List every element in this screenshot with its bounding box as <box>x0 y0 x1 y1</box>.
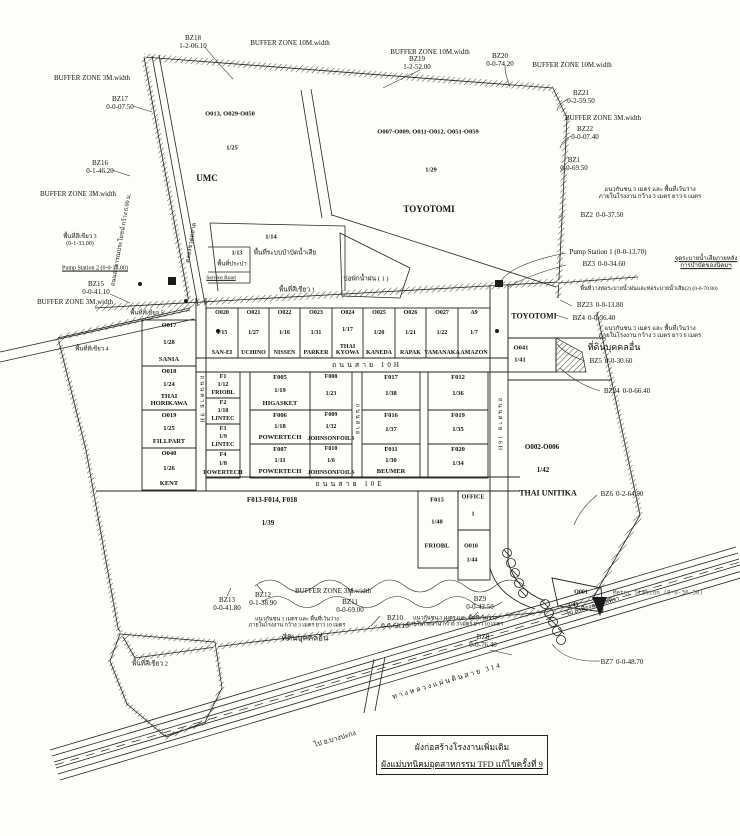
plot-cell-f012: F0121/36 <box>428 372 488 410</box>
buffer-3m-label-south: BUFFER ZONE 3M.width <box>295 587 371 595</box>
office-no: 1 <box>472 512 475 519</box>
f015-name: FRIOBL <box>425 542 450 549</box>
plot-cell-f007: F0071/11POWERTECH <box>250 444 310 478</box>
unitika-name: THAI UNITIKA <box>519 488 577 497</box>
plot-cell-f006: F0061/18POWERTECH <box>250 410 310 444</box>
pump-station-1-label: Pump Station 1 (0-0-13.70) <box>570 248 647 256</box>
setback-note-e: แนวกันชน 3 เมตร และ พื้นที่เว้นว่างภายใน… <box>599 326 701 340</box>
plot-cell-f010: F0101/6JOHNSONFOILS <box>310 444 352 478</box>
plot-cell-f009: F0091/32JOHNSONFOILS <box>310 410 352 444</box>
buffer-3m-label-west1: BUFFER ZONE 3M.width <box>40 190 116 198</box>
setback-note-ne: แนวกันชน 3 เมตร และ พื้นที่เว้นว่างภายใน… <box>599 187 701 201</box>
plot-cell-f3: F31/9LINTEC <box>206 424 240 450</box>
bz9-callout: BZ90-0-42.50 <box>466 595 493 611</box>
plot-cell-f017: F0171/38 <box>362 372 420 410</box>
plot-cell-f005: F0051/19HIGASKET <box>250 372 310 410</box>
waterworks-no: 1/13 <box>232 251 243 258</box>
bz5-callout: BZ50-0-30.60 <box>590 357 633 365</box>
plot-cell-o023: O0231/31PARKER <box>300 308 332 358</box>
plot-cell-f019: F0191/35 <box>428 410 488 444</box>
road-v2-label: ถนนสาย <box>354 404 360 437</box>
bz7-callout: BZ70-0-48.70 <box>601 658 644 666</box>
green-area-5-label: พื้นที่สีเขียว 5 <box>130 311 163 318</box>
bz17-callout: BZ170-0-07.50 <box>106 95 133 111</box>
others-land-label-south: ที่ดินบุคคลอื่น <box>282 633 329 642</box>
bz20-callout: BZ200-0-74.20 <box>486 52 513 68</box>
bz8-callout: BZ80-0-76.40 <box>469 633 496 649</box>
plot-cell-f1: F11/12FRIOBL <box>206 372 240 398</box>
bz11-callout: BZ110-0-69.00 <box>336 598 363 614</box>
green-area-4-label: พื้นที่สีเขียว 4 <box>75 347 108 354</box>
site-plan-sheet: BZ181-2-06.10 BUFFER ZONE 10M.width BUFF… <box>0 0 740 836</box>
buffer-3m-label-west2: BUFFER ZONE 3M.width <box>37 298 113 306</box>
buffer-3m-label-right: BUFFER ZONE 3M.width <box>565 114 641 122</box>
f013-codes: F013-F014, F018 <box>247 496 297 504</box>
road-v4-label: ถนนสาย 16H <box>496 398 503 452</box>
plot-cell-f016: F0161/37 <box>362 410 420 444</box>
road-h2-label: ถนนสาย 10E <box>315 480 384 488</box>
buffer-3m-label-topleft: BUFFER ZONE 3M.width <box>54 74 130 82</box>
title-block: ผังก่อสร้างโรงงานเพิ่มเติม ผังแม่บทนิคมอ… <box>376 735 548 775</box>
o041-code: O041 <box>514 344 529 351</box>
bz6-callout: BZ60-2-64.90 <box>601 490 644 498</box>
toyotomi-n-codes: O007-O009, O011-O012, O051-O059 <box>377 128 478 135</box>
plot-cell-f020: F0201/34 <box>428 444 488 478</box>
green-area-3-label: พื้นที่สีเขียว 3(0-1-33.00) <box>63 234 96 248</box>
unitika-codes: O002-O006 <box>525 443 559 451</box>
bz24-callout: BZ240-0-66.40 <box>604 387 650 395</box>
bz18-callout: BZ181-2-06.10 <box>179 34 206 50</box>
pipe-corridor-note: พื้นที่วางท่อระบายน้ำฝนและท่อระบายน้ำเสี… <box>580 286 717 292</box>
o001-code: O001 <box>574 590 588 597</box>
umc-plot-no: 1/25 <box>226 144 238 151</box>
plot-cell-f4: F41/8POWERTECH <box>206 450 240 478</box>
toyotomi-e-name: TOYOTOMI <box>511 311 557 320</box>
plot-cell-f008: F0081/23 <box>310 372 352 410</box>
bz19-callout: BZ191-2-52.00 <box>403 55 430 71</box>
bz12-callout: BZ120-1-38.90 <box>249 591 276 607</box>
plot-cell-f011: F0111/30BEUMER <box>362 444 420 478</box>
plot-cell-o027: O0271/22YAMANAKA <box>426 308 458 358</box>
bz13-callout: BZ130-0-41.80 <box>213 596 240 612</box>
plot-cell-o020: O0201/15SAN-EI <box>206 308 238 358</box>
plot-cell-o040: O0401/26KENT <box>142 448 196 490</box>
title-line-2: ผังแม่บทนิคมอุตสาหกรรม TFD แก้ไขครั้งที่… <box>381 757 543 771</box>
pump-station-2-icon <box>168 277 176 285</box>
bz10-callout: BZ100-0-68.10 <box>381 614 408 630</box>
bz16-callout: BZ160-1-46.20 <box>86 159 113 175</box>
setback-note-sw: แนวกันชน 3 เมตร และ พื้นที่เว้นว่างภายใน… <box>249 617 346 630</box>
plot-cell-o024: O0241/17THAI KYOWA <box>332 308 363 358</box>
wwt-label: พื้นที่ระบบบำบัดน้ำเสีย <box>254 249 316 256</box>
toyotomi-n-no: 1/29 <box>425 166 437 173</box>
bz3-callout: BZ30-0-34.60 <box>583 260 626 268</box>
o041-no: 1/41 <box>514 356 526 363</box>
meter-station-label: Meter Station (0-0-36.30) <box>613 591 703 598</box>
plot-cell-o026: O0261/21RAPAK <box>395 308 426 358</box>
plot-cell-f2: F21/10LINTEC <box>206 398 240 424</box>
plot-cell-o022: O0221/16NISSEN <box>269 308 300 358</box>
plot-cell-o018: O0181/24THAI HORIKAWA <box>142 366 196 410</box>
buffer-10m-label-1: BUFFER ZONE 10M.width <box>250 39 330 47</box>
estate-drain-note: จุดระบายน้ำเสียภายหลังการบำบัดของนิคมฯ <box>675 256 738 270</box>
bz23-callout: BZ230-0-13.80 <box>577 301 623 309</box>
green-area-1-label: พื้นที่สีเขียว 1 <box>279 286 315 293</box>
bz1-callout: BZ10-0-69.50 <box>560 156 587 172</box>
waterworks-label: พื้นที่ประปา <box>217 262 246 269</box>
bz15-callout: BZ150-0-41.10 <box>82 280 109 296</box>
setback-note-se: แนวกันชน 3 เมตร และ พื้นที่เว้นว่างภายใน… <box>407 616 504 629</box>
unitika-no: 1/42 <box>537 466 549 474</box>
pump-station-1-icon <box>495 280 503 287</box>
bz22-callout: BZ220-0-07.40 <box>571 125 598 141</box>
umc-plot-codes: O013, O029-O050 <box>205 110 255 117</box>
bz21-callout: BZ210-2-59.50 <box>567 89 594 105</box>
bz2-callout: BZ20-0-37.50 <box>581 211 624 219</box>
office-name: OFFICE <box>462 495 485 502</box>
plot-cell-o019: O0191/25FILLPART <box>142 410 196 448</box>
plot-cell-o021: O0211/27UCHINO <box>238 308 269 358</box>
plot-cell-a9: A91/7AMAZON <box>458 308 490 358</box>
green-area-2-label: พื้นที่สีเขียว 2 <box>132 660 168 667</box>
service-road-label: Service Road <box>206 275 235 281</box>
umc-plot-name: UMC <box>196 173 218 183</box>
title-line-1: ผังก่อสร้างโรงงานเพิ่มเติม <box>415 740 509 754</box>
others-land-label-east: ที่ดินบุคคลอื่น <box>588 342 641 352</box>
buffer-10m-label-3: BUFFER ZONE 10M.width <box>532 61 612 69</box>
plot-cell-o025: O0251/20KANEDA <box>363 308 395 358</box>
o010-no: 1/44 <box>467 558 478 565</box>
plot-cell-o017: O0171/28SANIA <box>142 320 196 366</box>
o010-code: O010 <box>464 544 478 551</box>
toyotomi-n-name: TOYOTOMI <box>403 204 454 214</box>
road-v1-label: ถนนสาย 9H <box>198 375 205 424</box>
f013-no: 1/39 <box>262 519 274 527</box>
wwt-no: 1/14 <box>265 233 277 240</box>
f015-no: 1/40 <box>431 518 443 525</box>
pond-1-label: บ่อพักน้ำฝน ( 1 ) <box>343 275 388 282</box>
f015-code: F015 <box>430 496 444 503</box>
road-h1-label: ถนนสาย 10H <box>332 361 402 369</box>
bz4-callout: BZ40-0-36.40 <box>573 314 616 322</box>
